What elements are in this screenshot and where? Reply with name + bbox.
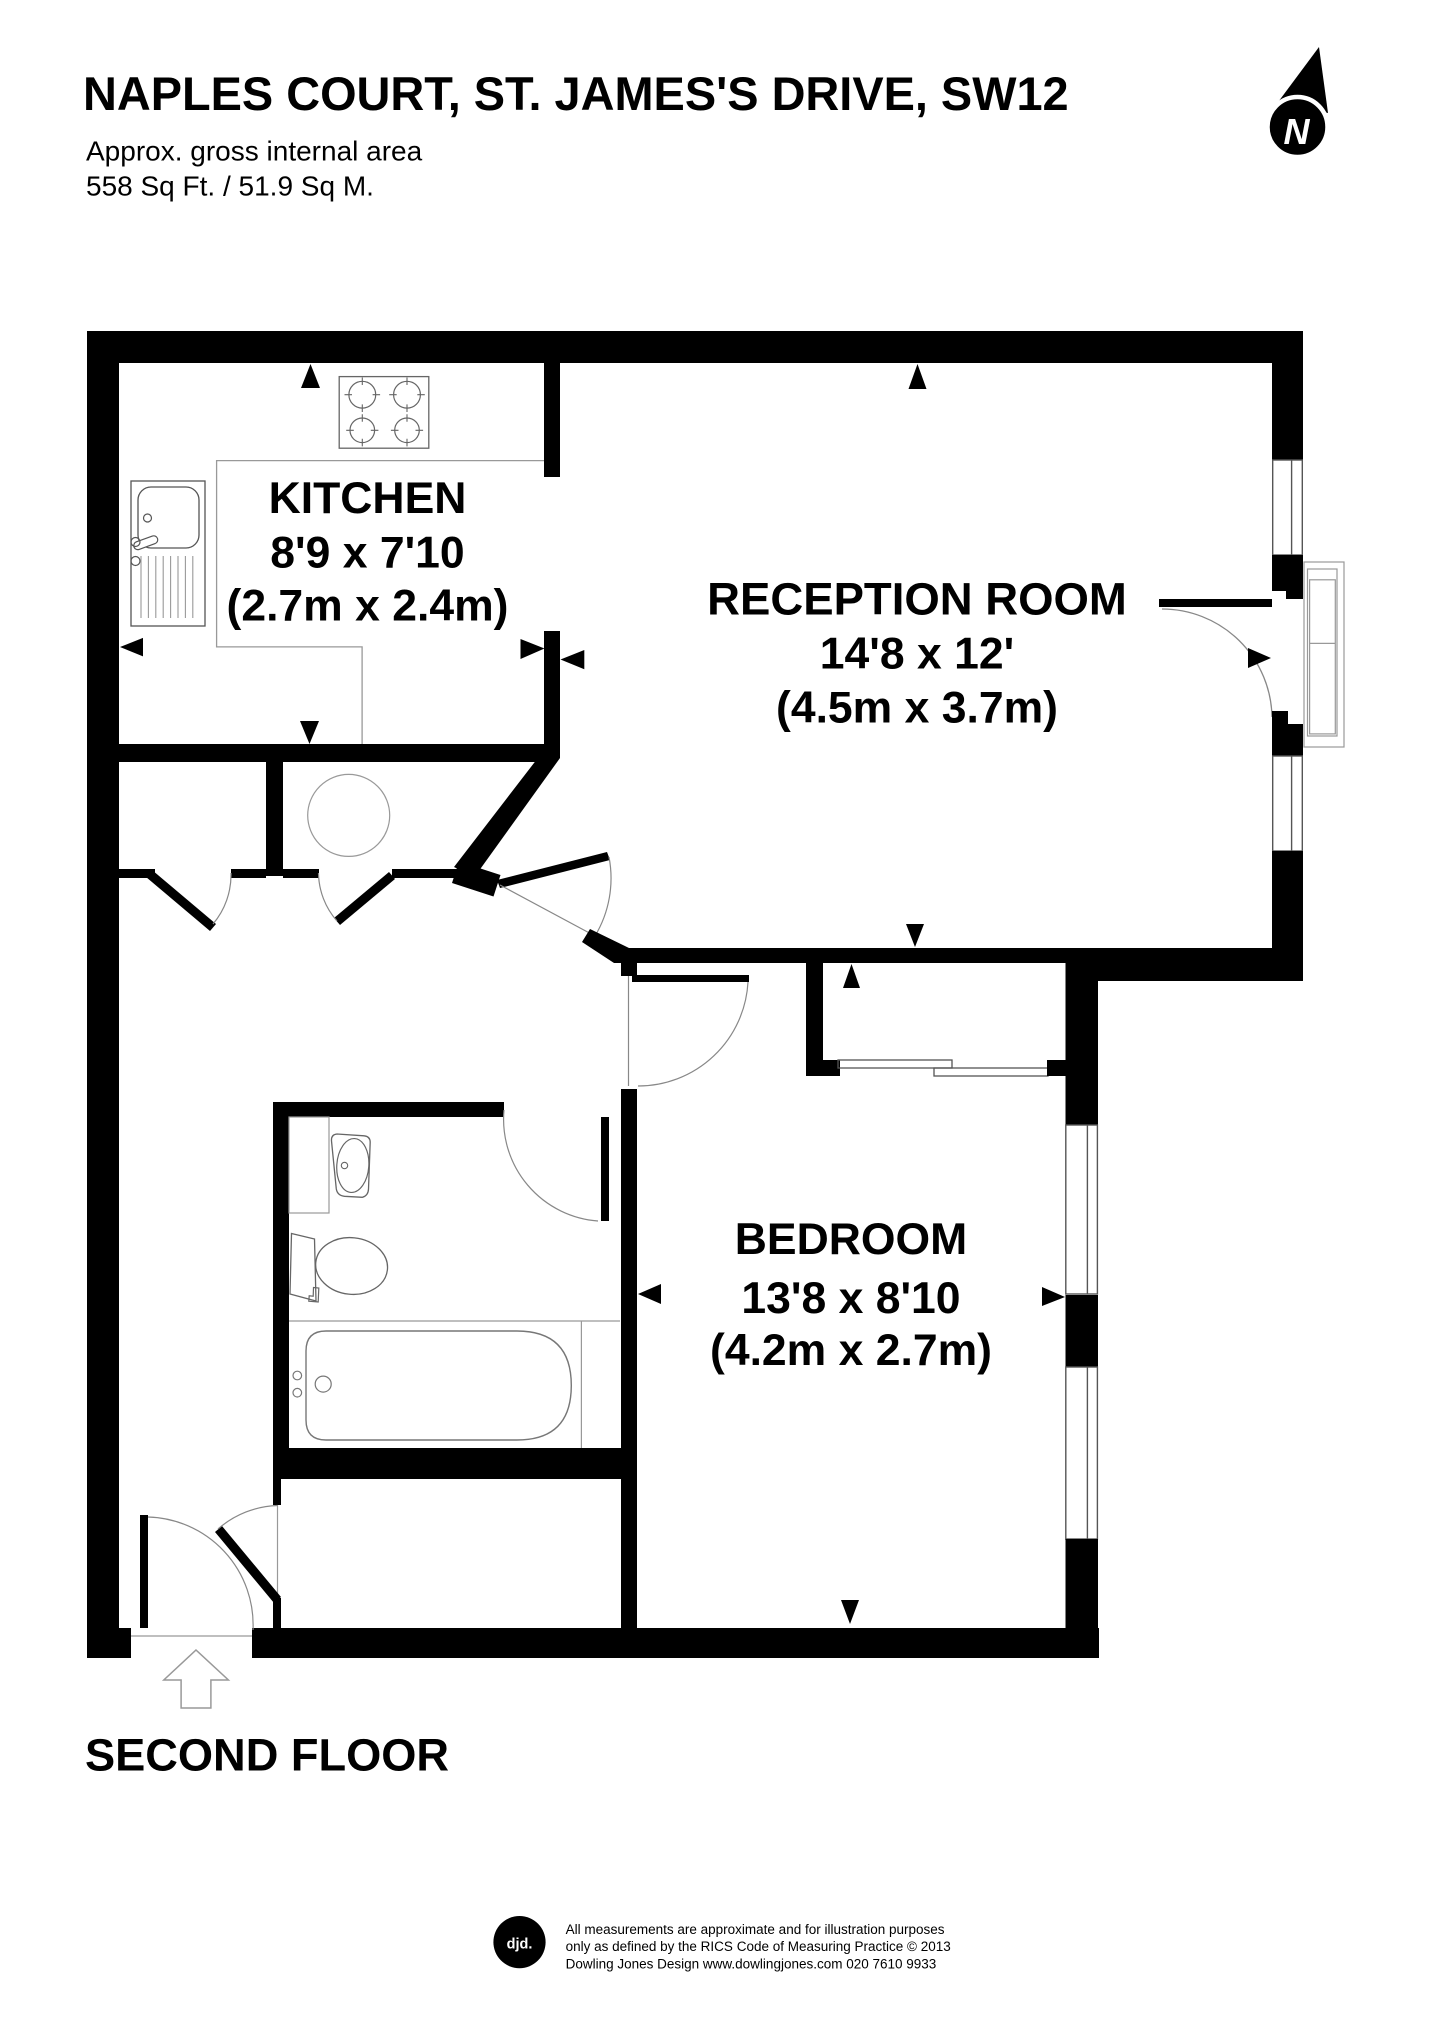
svg-text:RECEPTION ROOM: RECEPTION ROOM	[707, 574, 1127, 625]
svg-text:(2.7m x 2.4m): (2.7m x 2.4m)	[227, 582, 509, 631]
svg-text:djd.: djd.	[507, 1937, 533, 1953]
svg-text:SECOND FLOOR: SECOND FLOOR	[85, 1730, 449, 1781]
svg-text:Approx. gross internal area: Approx. gross internal area	[86, 136, 423, 167]
svg-text:(4.2m x 2.7m): (4.2m x 2.7m)	[710, 1326, 992, 1375]
svg-text:(4.5m x 3.7m): (4.5m x 3.7m)	[776, 683, 1058, 732]
svg-text:14'8 x 12': 14'8 x 12'	[820, 630, 1014, 679]
svg-text:NAPLES COURT, ST. JAMES'S DRIV: NAPLES COURT, ST. JAMES'S DRIVE, SW12	[83, 68, 1069, 120]
svg-text:N: N	[1284, 111, 1311, 152]
svg-text:13'8 x 8'10: 13'8 x 8'10	[741, 1274, 960, 1323]
svg-text:Dowling Jones Design www.dowli: Dowling Jones Design www.dowlingjones.co…	[566, 1956, 937, 1971]
svg-text:BEDROOM: BEDROOM	[735, 1215, 967, 1264]
svg-text:All measurements are approxima: All measurements are approximate and for…	[566, 1922, 945, 1937]
svg-text:8'9 x 7'10: 8'9 x 7'10	[270, 529, 464, 578]
svg-text:only as defined by the RICS Co: only as defined by the RICS Code of Meas…	[566, 1939, 951, 1954]
svg-text:KITCHEN: KITCHEN	[269, 474, 467, 523]
svg-text:558 Sq Ft. / 51.9 Sq M.: 558 Sq Ft. / 51.9 Sq M.	[86, 171, 374, 202]
